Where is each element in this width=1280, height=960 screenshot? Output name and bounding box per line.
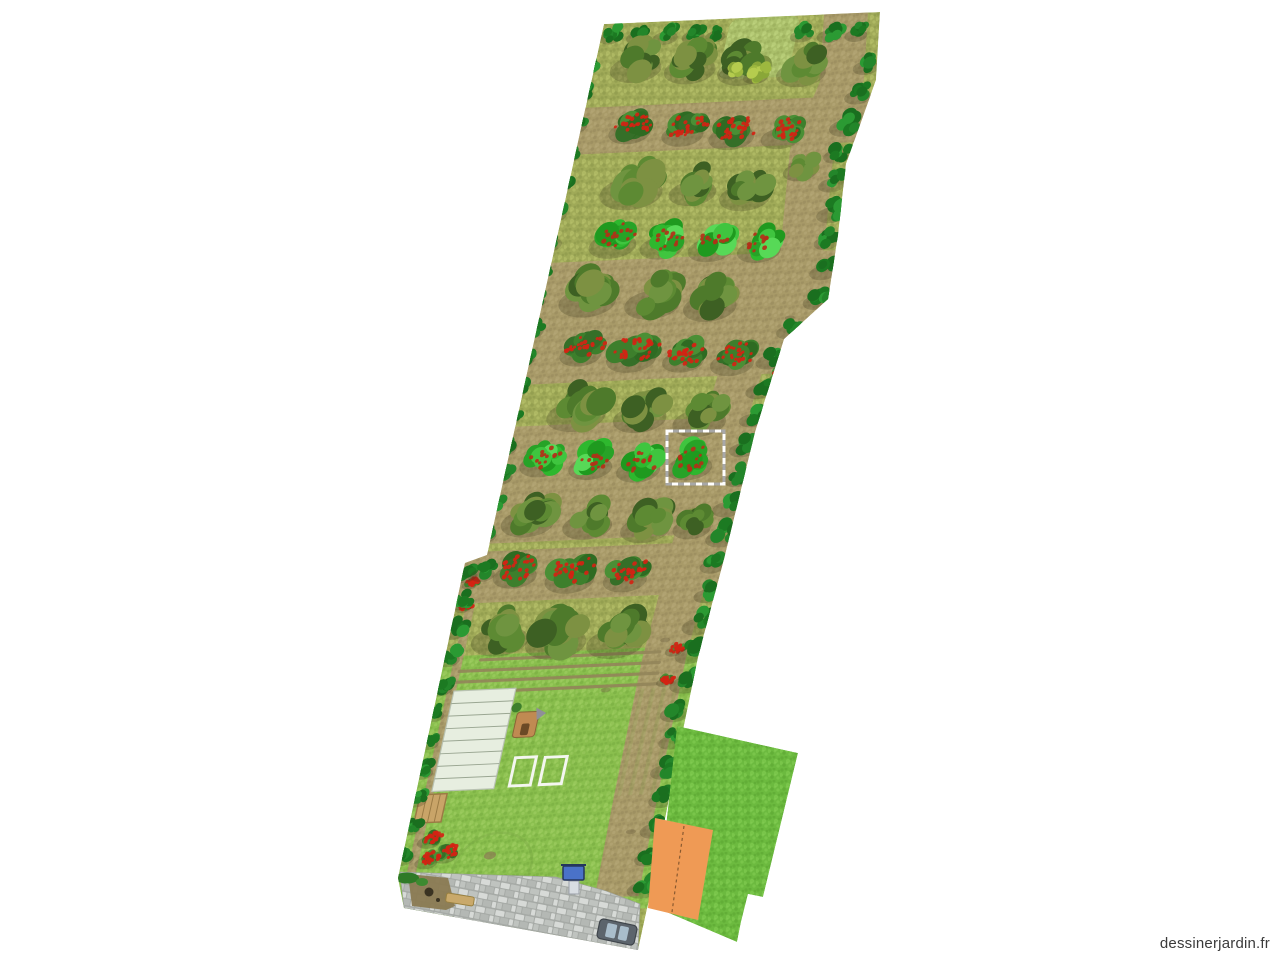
garden-plan-stage: dessinerjardin.fr bbox=[0, 0, 1280, 960]
main-plot[interactable] bbox=[377, 9, 904, 950]
watermark: dessinerjardin.fr bbox=[1160, 935, 1270, 952]
garden-plan[interactable] bbox=[0, 0, 1280, 960]
gravel-bush[interactable] bbox=[395, 873, 419, 884]
gravel-bush[interactable] bbox=[416, 878, 428, 886]
